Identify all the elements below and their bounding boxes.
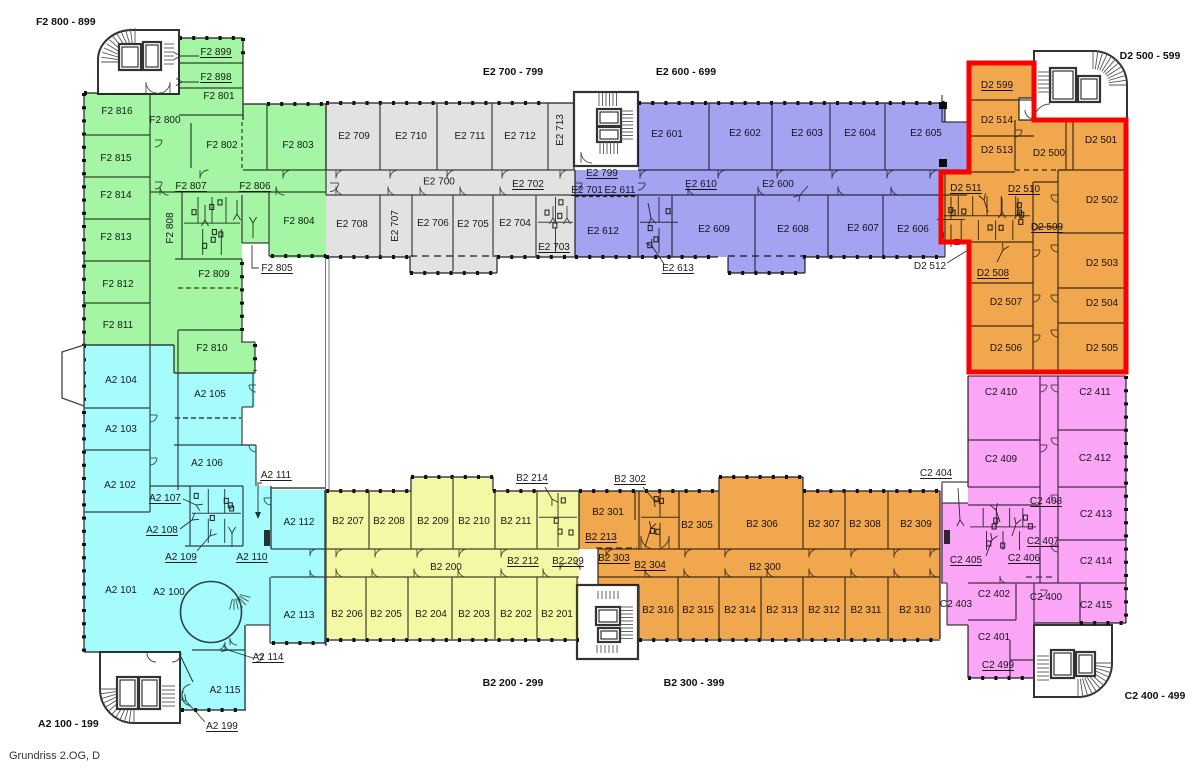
svg-text:C2 401: C2 401 [978,632,1011,643]
svg-text:A2 100: A2 100 [153,587,185,598]
svg-text:F2 899: F2 899 [200,47,232,58]
svg-text:B2 213: B2 213 [585,532,617,543]
svg-text:A2 112: A2 112 [284,517,315,528]
svg-text:F2 807: F2 807 [175,181,207,192]
svg-text:B2 209: B2 209 [417,516,449,527]
svg-text:C2 414: C2 414 [1080,556,1113,567]
svg-text:F2 801: F2 801 [203,91,235,102]
svg-text:A2 113: A2 113 [284,610,315,621]
svg-text:A2 102: A2 102 [104,480,136,491]
svg-text:F2 806: F2 806 [239,181,271,192]
svg-text:B2 301: B2 301 [592,507,624,518]
svg-text:E2 706: E2 706 [417,218,449,229]
svg-text:B2 310: B2 310 [899,605,931,616]
svg-text:B2 212: B2 212 [507,556,539,567]
svg-text:F2 816: F2 816 [101,106,133,117]
svg-text:F2 815: F2 815 [100,153,132,164]
svg-text:D2 509: D2 509 [1031,222,1064,233]
svg-text:C2 411: C2 411 [1079,387,1111,398]
svg-text:D2 500 - 599: D2 500 - 599 [1120,50,1181,62]
svg-text:D2 510: D2 510 [1008,184,1041,195]
svg-text:D2 513: D2 513 [981,145,1014,156]
svg-text:D2 508: D2 508 [977,268,1010,279]
svg-text:F2 898: F2 898 [200,72,232,83]
svg-text:C2 403: C2 403 [940,599,973,610]
svg-text:B2 200: B2 200 [430,562,462,573]
svg-text:B2 306: B2 306 [746,519,778,530]
svg-text:B2 299: B2 299 [552,556,584,567]
svg-text:E2 701: E2 701 [571,185,603,196]
svg-text:A2 106: A2 106 [191,458,223,469]
svg-text:E2 711: E2 711 [455,131,486,142]
svg-text:E2 799: E2 799 [586,168,618,179]
svg-text:F2 812: F2 812 [102,279,134,290]
svg-text:E2 602: E2 602 [729,128,761,139]
svg-text:E2 708: E2 708 [336,219,368,230]
svg-text:E2 607: E2 607 [847,223,879,234]
svg-text:A2 115: A2 115 [210,685,241,696]
svg-text:E2 603: E2 603 [791,128,823,139]
svg-text:F2 808: F2 808 [165,212,176,244]
svg-text:C2 404: C2 404 [920,468,953,479]
svg-text:E2 702: E2 702 [512,179,544,190]
svg-text:A2 110: A2 110 [237,552,268,563]
svg-text:D2 501: D2 501 [1085,135,1118,146]
svg-text:F2 809: F2 809 [198,269,230,280]
svg-text:D2 503: D2 503 [1086,258,1119,269]
svg-text:D2 599: D2 599 [981,80,1014,91]
svg-text:E2 707: E2 707 [390,210,401,242]
svg-text:E2 600: E2 600 [762,179,794,190]
svg-text:E2 601: E2 601 [651,129,683,140]
svg-text:A2 114: A2 114 [253,652,284,663]
svg-text:E2 713: E2 713 [555,114,566,146]
svg-text:C2 400 - 499: C2 400 - 499 [1125,690,1186,702]
svg-text:E2 600 - 699: E2 600 - 699 [656,66,716,78]
svg-text:D2 512: D2 512 [914,261,947,272]
svg-text:B2 206: B2 206 [331,609,363,620]
svg-text:B2 303: B2 303 [598,553,630,564]
svg-text:A2 104: A2 104 [105,375,137,386]
svg-text:B2 204: B2 204 [415,609,447,620]
svg-text:D2 502: D2 502 [1086,195,1119,206]
svg-text:D2 505: D2 505 [1086,343,1119,354]
svg-text:A2 105: A2 105 [194,389,226,400]
svg-text:E2 709: E2 709 [338,131,370,142]
svg-text:F2 814: F2 814 [100,190,132,201]
svg-text:A2 111: A2 111 [261,470,292,481]
svg-text:E2 612: E2 612 [587,226,619,237]
svg-text:C2 405: C2 405 [950,555,983,566]
svg-text:C2 407: C2 407 [1027,536,1060,547]
svg-text:E2 606: E2 606 [897,224,929,235]
svg-text:E2 700: E2 700 [423,177,455,188]
svg-text:B2 307: B2 307 [808,519,840,530]
svg-text:E2 610: E2 610 [685,179,717,190]
svg-text:E2 710: E2 710 [395,131,427,142]
svg-text:B2 302: B2 302 [614,474,646,485]
svg-text:C2 402: C2 402 [978,589,1011,600]
svg-text:B2 315: B2 315 [682,605,714,616]
svg-text:B2 316: B2 316 [642,605,674,616]
svg-text:F2 805: F2 805 [261,263,293,274]
svg-text:A2 103: A2 103 [105,424,137,435]
svg-text:B2 214: B2 214 [516,473,548,484]
svg-text:B2 202: B2 202 [500,609,532,620]
svg-text:E2 609: E2 609 [698,224,730,235]
svg-text:B2 313: B2 313 [766,605,798,616]
svg-text:E2 604: E2 604 [844,128,876,139]
svg-text:F2 800 - 899: F2 800 - 899 [36,16,96,28]
svg-text:E2 605: E2 605 [910,128,942,139]
svg-text:C2 409: C2 409 [985,454,1018,465]
svg-text:C2 499: C2 499 [982,660,1015,671]
svg-text:C2 415: C2 415 [1080,600,1113,611]
svg-text:F2 803: F2 803 [282,140,314,151]
svg-text:B2 308: B2 308 [849,519,881,530]
svg-text:D2 506: D2 506 [990,343,1023,354]
svg-text:B2 203: B2 203 [458,609,490,620]
svg-text:F2 811: F2 811 [103,320,134,331]
svg-text:D2 504: D2 504 [1086,298,1119,309]
svg-text:B2 300 - 399: B2 300 - 399 [664,677,725,689]
svg-text:E2 712: E2 712 [504,131,536,142]
svg-text:C2 412: C2 412 [1079,453,1112,464]
svg-text:B2 211: B2 211 [501,516,532,527]
svg-text:F2 804: F2 804 [283,216,315,227]
svg-text:A2 107: A2 107 [149,493,181,504]
svg-text:C2 413: C2 413 [1080,509,1113,520]
svg-text:B2 205: B2 205 [370,609,402,620]
svg-text:B2 304: B2 304 [634,560,666,571]
svg-text:E2 703: E2 703 [538,242,570,253]
svg-text:A2 199: A2 199 [206,721,238,732]
svg-text:E2 611: E2 611 [605,185,636,196]
svg-text:F2 800: F2 800 [149,115,181,126]
svg-text:B2 311: B2 311 [851,605,882,616]
svg-text:C2 400: C2 400 [1030,592,1063,603]
svg-text:B2 200 - 299: B2 200 - 299 [483,677,544,689]
svg-text:A2 101: A2 101 [105,585,137,596]
svg-text:B2 207: B2 207 [332,516,364,527]
svg-text:C2 408: C2 408 [1030,496,1063,507]
svg-text:F2 802: F2 802 [206,140,238,151]
svg-text:A2 109: A2 109 [165,552,197,563]
svg-text:B2 210: B2 210 [458,516,490,527]
svg-text:B2 314: B2 314 [724,605,756,616]
svg-text:B2 300: B2 300 [749,562,781,573]
svg-text:D2 511: D2 511 [950,183,982,194]
svg-text:A2 100 - 199: A2 100 - 199 [38,718,99,730]
svg-text:E2 613: E2 613 [662,263,694,274]
svg-text:D2 507: D2 507 [990,297,1023,308]
svg-text:D2 500: D2 500 [1033,148,1066,159]
svg-text:C2 410: C2 410 [985,387,1018,398]
svg-text:D2 514: D2 514 [981,115,1014,126]
svg-text:A2 108: A2 108 [146,525,178,536]
svg-text:Grundriss 2.OG, D: Grundriss 2.OG, D [9,750,100,762]
svg-text:F2 810: F2 810 [196,343,228,354]
svg-text:E2 700 - 799: E2 700 - 799 [483,66,543,78]
svg-text:B2 312: B2 312 [808,605,840,616]
svg-text:B2 201: B2 201 [541,609,573,620]
svg-text:E2 705: E2 705 [457,219,489,230]
svg-text:B2 309: B2 309 [900,519,932,530]
svg-text:F2 813: F2 813 [100,232,132,243]
svg-text:C2 406: C2 406 [1008,553,1041,564]
svg-text:E2 704: E2 704 [499,218,531,229]
svg-text:B2 305: B2 305 [681,520,713,531]
svg-text:B2 208: B2 208 [373,516,405,527]
svg-text:E2 608: E2 608 [777,224,809,235]
